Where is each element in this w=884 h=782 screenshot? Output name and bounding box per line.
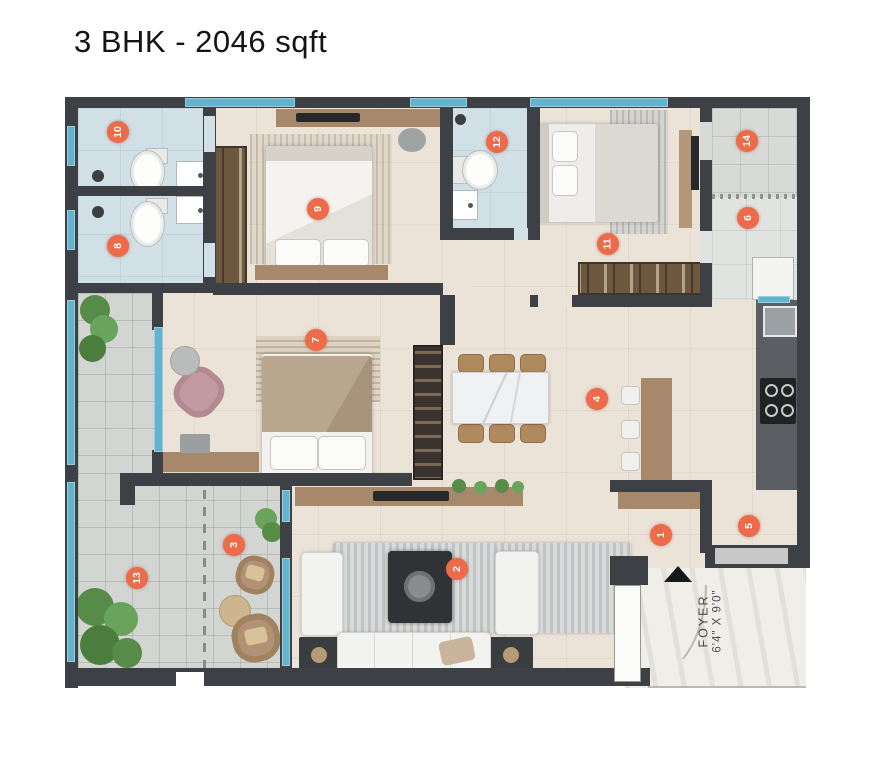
- room-marker-number: 3: [228, 542, 240, 548]
- shower-head: [92, 170, 104, 182]
- hob-burner: [765, 384, 778, 397]
- room-marker-number: 8: [112, 243, 124, 249]
- bedroom3-wardrobe: [578, 262, 708, 295]
- bar-stool: [621, 452, 640, 471]
- window-glazing: [67, 210, 75, 250]
- bedroom2-wardrobe: [213, 146, 247, 292]
- room-marker-number: 10: [112, 126, 124, 138]
- room-marker-11: 11: [597, 233, 619, 255]
- living-rug: [333, 543, 631, 633]
- breakfast-counter: [641, 378, 672, 483]
- dining-chair: [489, 354, 515, 373]
- side-table-decor: [503, 647, 519, 663]
- door-opening: [538, 295, 572, 307]
- dining-chair: [458, 424, 484, 443]
- bedroom2-headboard: [266, 146, 372, 161]
- room-marker-number: 5: [743, 523, 755, 529]
- dining-chair: [489, 424, 515, 443]
- bedroom2-pillow: [275, 239, 321, 267]
- room-marker-2: 2: [446, 558, 468, 580]
- bedroom2-pillow: [323, 239, 369, 267]
- door-opening: [204, 243, 215, 277]
- wall-segment: [610, 480, 712, 492]
- coffee-table-decor: [404, 571, 435, 602]
- door-opening: [176, 672, 204, 688]
- foyer-wall-niche: [715, 548, 788, 564]
- dining-chair: [458, 354, 484, 373]
- bar-stool: [621, 386, 640, 405]
- terrace-partition-dashed-line: [203, 490, 206, 668]
- room-marker-12: 12: [486, 131, 508, 153]
- refrigerator: [752, 257, 794, 300]
- window-glazing: [530, 98, 668, 107]
- floor-plan-page: 3 BHK - 2046 sqft: [0, 0, 884, 782]
- wall-segment: [440, 108, 453, 240]
- room-marker-number: 7: [310, 337, 322, 343]
- bedroom2-foot-bench: [255, 265, 388, 280]
- wall-segment: [797, 97, 810, 560]
- master-desk: [180, 434, 210, 453]
- room-marker-1: 1: [650, 524, 672, 546]
- foyer-name: FOYER: [696, 594, 710, 647]
- wall-segment: [610, 556, 648, 585]
- master-pillow: [318, 436, 366, 470]
- wall-segment: [152, 290, 163, 330]
- window-glazing: [67, 482, 75, 662]
- master-blanket: [262, 356, 372, 432]
- door-opening: [700, 231, 712, 263]
- armchair-left: [301, 552, 343, 636]
- terrace-plant: [79, 335, 106, 362]
- bedroom3-tv: [691, 136, 699, 190]
- bedroom2-desk-chair: [398, 128, 426, 152]
- toilet: [462, 150, 498, 190]
- room-marker-number: 11: [602, 238, 614, 249]
- room-marker-8: 8: [107, 235, 129, 257]
- hob-burner: [781, 384, 794, 397]
- page-title: 3 BHK - 2046 sqft: [74, 24, 327, 60]
- room-marker-number: 6: [742, 215, 754, 221]
- window-glazing: [67, 300, 75, 465]
- console-plant: [512, 481, 524, 493]
- foyer-label: FOYER 6'4" X 9'0": [689, 564, 731, 679]
- door-opening: [204, 116, 215, 152]
- dining-table: [452, 372, 549, 424]
- door-opening: [700, 122, 712, 160]
- hob-burner: [781, 404, 794, 417]
- entrance-door-leaf: [614, 585, 641, 682]
- room-marker-number: 4: [591, 396, 603, 402]
- room-marker-number: 13: [131, 572, 143, 584]
- bedroom2-tv: [296, 113, 360, 122]
- wall-segment: [213, 283, 455, 295]
- room-marker-7: 7: [305, 329, 327, 351]
- terrace-plant: [112, 638, 142, 668]
- window-glazing: [758, 296, 790, 303]
- balcony-utility-divider: [712, 194, 797, 199]
- bedroom3-pillow: [552, 165, 578, 196]
- room-marker-number: 12: [491, 136, 503, 148]
- window-glazing: [410, 98, 467, 107]
- shower-head: [455, 114, 466, 125]
- window-glazing: [154, 327, 163, 452]
- wall-segment: [527, 108, 540, 240]
- master-dresser: [163, 452, 259, 472]
- room-marker-3: 3: [223, 534, 245, 556]
- room-marker-number: 1: [655, 532, 667, 538]
- foyer-dimensions: 6'4" X 9'0": [711, 589, 723, 652]
- side-table-decor: [311, 647, 327, 663]
- wall-segment: [65, 668, 650, 686]
- balcony-floor: [712, 108, 797, 196]
- room-marker-9: 9: [307, 198, 329, 220]
- console-plant: [452, 479, 466, 493]
- window-glazing: [282, 558, 290, 666]
- kitchen-sink: [763, 306, 797, 337]
- terrace-plant: [262, 522, 282, 542]
- console-plant: [474, 481, 487, 494]
- master-side-table: [170, 346, 200, 376]
- bedroom3-pillow: [552, 131, 578, 162]
- room-marker-6: 6: [737, 207, 759, 229]
- room-marker-14: 14: [736, 130, 758, 152]
- room-marker-13: 13: [126, 567, 148, 589]
- armchair-right: [495, 551, 539, 635]
- door-opening: [514, 228, 528, 240]
- wall-segment: [65, 283, 213, 293]
- dining-chair: [520, 354, 546, 373]
- console-plant: [495, 479, 509, 493]
- window-glazing: [282, 490, 290, 522]
- foyer-edge-line: [648, 686, 806, 688]
- hob-burner: [765, 404, 778, 417]
- master-pillow: [270, 436, 318, 470]
- toilet: [130, 201, 165, 247]
- shower-head: [92, 206, 104, 218]
- room-marker-number: 9: [312, 206, 324, 212]
- window-glazing: [185, 98, 295, 107]
- door-opening: [443, 283, 471, 295]
- room-marker-4: 4: [586, 388, 608, 410]
- wall-segment: [152, 450, 163, 473]
- wall-segment: [440, 293, 455, 345]
- room-marker-10: 10: [107, 121, 129, 143]
- dining-chair: [520, 424, 546, 443]
- room-marker-number: 2: [451, 566, 463, 572]
- crockery-unit: [413, 345, 443, 480]
- window-glazing: [67, 126, 75, 166]
- passage-console: [618, 492, 700, 509]
- wall-segment: [120, 473, 412, 486]
- bar-stool: [621, 420, 640, 439]
- wall-segment: [78, 186, 213, 196]
- bedroom2-desk: [374, 109, 444, 127]
- living-tv: [373, 491, 449, 501]
- room-marker-5: 5: [738, 515, 760, 537]
- room-marker-number: 14: [741, 135, 753, 147]
- wall-segment: [120, 486, 135, 505]
